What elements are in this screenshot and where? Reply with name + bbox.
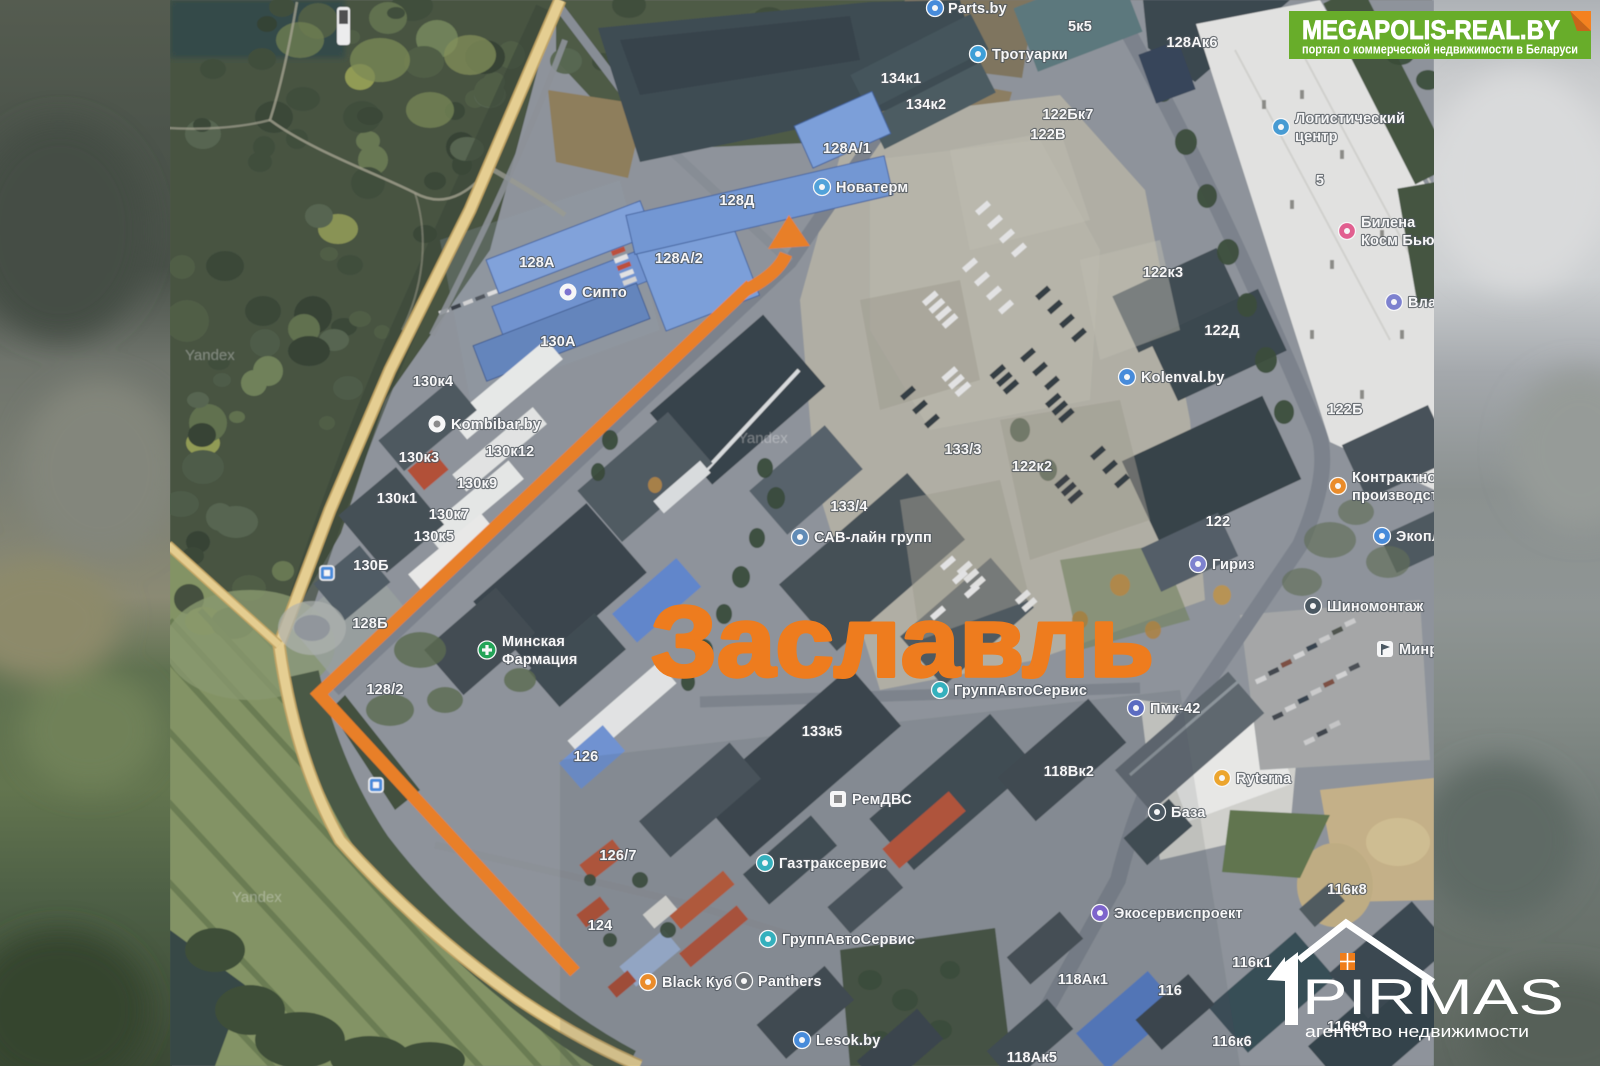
svg-text:Заславль: Заславль: [651, 586, 1154, 698]
svg-text:портал о коммерческой недвижим: портал о коммерческой недвижимости в Бел…: [1302, 43, 1578, 57]
svg-text:MEGAPOLIS-REAL.BY: MEGAPOLIS-REAL.BY: [1302, 15, 1560, 45]
svg-text:PIRMAS: PIRMAS: [1302, 969, 1564, 1025]
svg-text:агентство недвижимости: агентство недвижимости: [1305, 1023, 1529, 1041]
